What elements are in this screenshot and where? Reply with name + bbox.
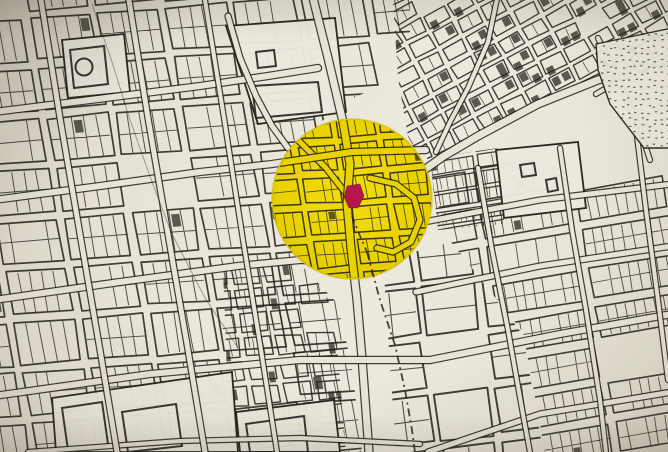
map-ink-layer: [0, 0, 668, 452]
orchard-area: [596, 28, 668, 148]
road-se-avenue-2: [416, 246, 668, 292]
map-photo: [0, 0, 668, 452]
map-canvas: [0, 0, 668, 452]
